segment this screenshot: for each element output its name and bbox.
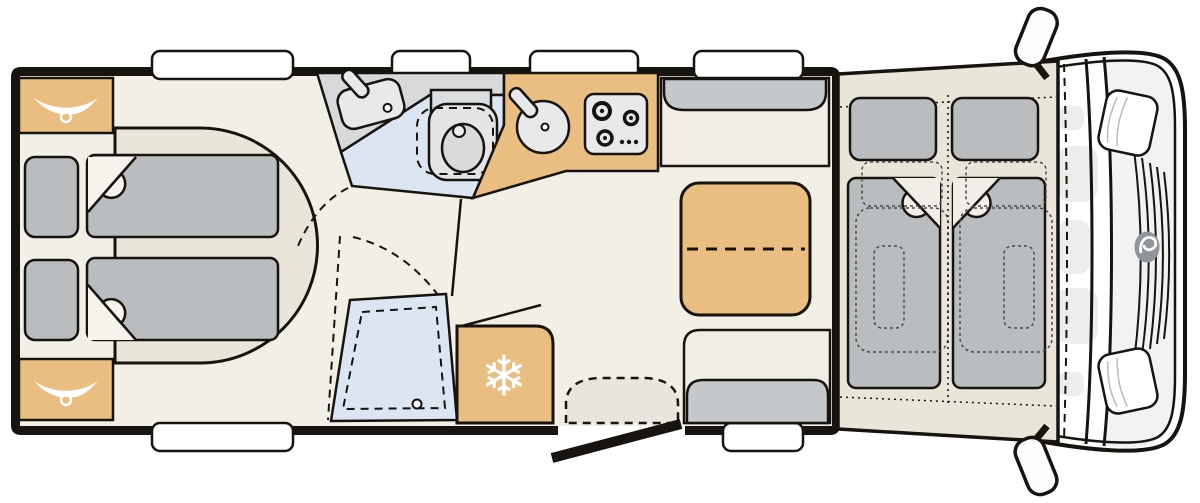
entry-step xyxy=(566,378,678,423)
headlight-right-icon xyxy=(1096,346,1159,416)
window-dinette-bottom xyxy=(723,423,803,451)
rear-bed-mattress xyxy=(87,258,278,340)
drop-down-bed-area xyxy=(838,61,1067,442)
pillow xyxy=(952,98,1038,160)
shower-drain-icon xyxy=(413,400,422,409)
dinette-bench-front-backrest xyxy=(687,380,828,423)
pillow xyxy=(25,260,78,340)
motorhome-floorplan: ❄ xyxy=(0,0,1200,503)
wardrobe-top xyxy=(19,78,113,133)
cab-bed-mattress xyxy=(848,178,940,388)
wardrobe-bottom xyxy=(19,359,113,420)
snowflake-icon: ❄ xyxy=(481,345,528,410)
window-rear-bottom xyxy=(152,423,293,451)
headlight-left-icon xyxy=(1096,88,1159,158)
dinette xyxy=(661,78,830,423)
dinette-bench-rear-backrest xyxy=(664,79,826,110)
rear-bed-mattress xyxy=(87,155,278,237)
shower xyxy=(331,294,457,421)
fridge: ❄ xyxy=(457,326,553,423)
pillow xyxy=(25,157,78,237)
shower-tray xyxy=(331,294,457,421)
pillow xyxy=(850,98,936,160)
window-rear-top xyxy=(152,51,293,79)
window-dinette-top xyxy=(694,51,803,79)
brand-logo xyxy=(1135,232,1160,263)
hob-icon xyxy=(585,94,647,154)
